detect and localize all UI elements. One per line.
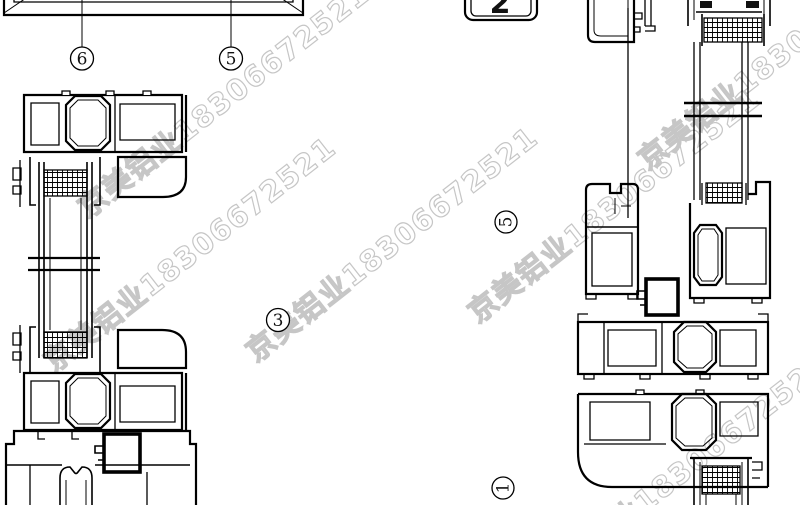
gasket-hooks xyxy=(13,325,21,373)
profile-chamber xyxy=(592,233,632,286)
octagonal-chamber-inner xyxy=(698,229,718,281)
octagonal-chamber-inner xyxy=(70,378,106,424)
profile-inner-wall xyxy=(594,0,628,36)
fastener-blocks xyxy=(700,1,759,8)
reinforcement-chamber xyxy=(646,279,678,315)
profile-outline xyxy=(6,431,196,505)
callout-detail-1: 1 xyxy=(492,477,514,499)
bottom-frame-profile xyxy=(6,431,196,505)
glazing-bead-inner xyxy=(66,480,86,505)
glazing-gasket-hatch xyxy=(44,332,87,358)
glazing-gasket-hatch xyxy=(706,183,742,203)
table-inner-border xyxy=(14,0,293,2)
side-strip-profile xyxy=(645,0,655,31)
glazing-gasket-hatch xyxy=(44,170,87,196)
callout-number-rotated: 1 xyxy=(494,483,514,494)
callout-detail-5: 5 xyxy=(495,211,517,233)
center-reinforcement-chamber xyxy=(637,279,678,315)
profile-chambers xyxy=(31,373,175,430)
octagonal-chamber-inner xyxy=(70,100,106,146)
bottom-bar-upper-profile xyxy=(578,314,768,379)
callout-number: 6 xyxy=(77,50,88,70)
profile-chamber xyxy=(726,228,766,284)
parts-table xyxy=(4,0,303,47)
glazing-gasket-hatch xyxy=(704,18,762,42)
glass-pane-lines xyxy=(50,198,81,330)
callout-number: 5 xyxy=(226,50,237,70)
callout-part-6: 6 xyxy=(71,47,94,70)
octagonal-chamber xyxy=(674,322,716,372)
frame-top-hooks xyxy=(38,431,79,439)
left-section-drawing xyxy=(6,91,196,505)
technical-drawing-canvas: 京美铝业18306672521 京美铝业18306672521 京美铝业1830… xyxy=(0,0,800,505)
octagonal-chamber xyxy=(66,374,110,428)
glazing-gasket-hatch xyxy=(702,466,740,494)
octagonal-chamber xyxy=(66,96,110,150)
drawing-sheet: 京美铝业18306672521 京美铝业18306672521 京美铝业1830… xyxy=(0,0,800,505)
glazing-bead-arch xyxy=(60,467,92,505)
profile-hooks xyxy=(634,13,642,32)
watermark-text: 京美铝业18306672521 xyxy=(531,346,800,505)
callout-part-5: 5 xyxy=(220,47,243,70)
callout-number: 3 xyxy=(273,311,284,331)
callout-number-rotated: 5 xyxy=(497,217,517,228)
detail-number-badge: 2 xyxy=(465,0,537,21)
reinforcement-chamber xyxy=(104,434,140,472)
leader-line xyxy=(82,0,231,47)
profile-chambers xyxy=(604,322,756,374)
callout-part-3: 3 xyxy=(267,309,290,332)
middle-right-profile xyxy=(690,182,770,303)
gasket-hooks xyxy=(752,462,762,478)
octagonal-chamber-inner xyxy=(678,326,712,368)
profile-rounded-corner xyxy=(118,330,186,368)
gasket-hooks xyxy=(13,160,21,207)
badge-number: 2 xyxy=(490,0,511,21)
